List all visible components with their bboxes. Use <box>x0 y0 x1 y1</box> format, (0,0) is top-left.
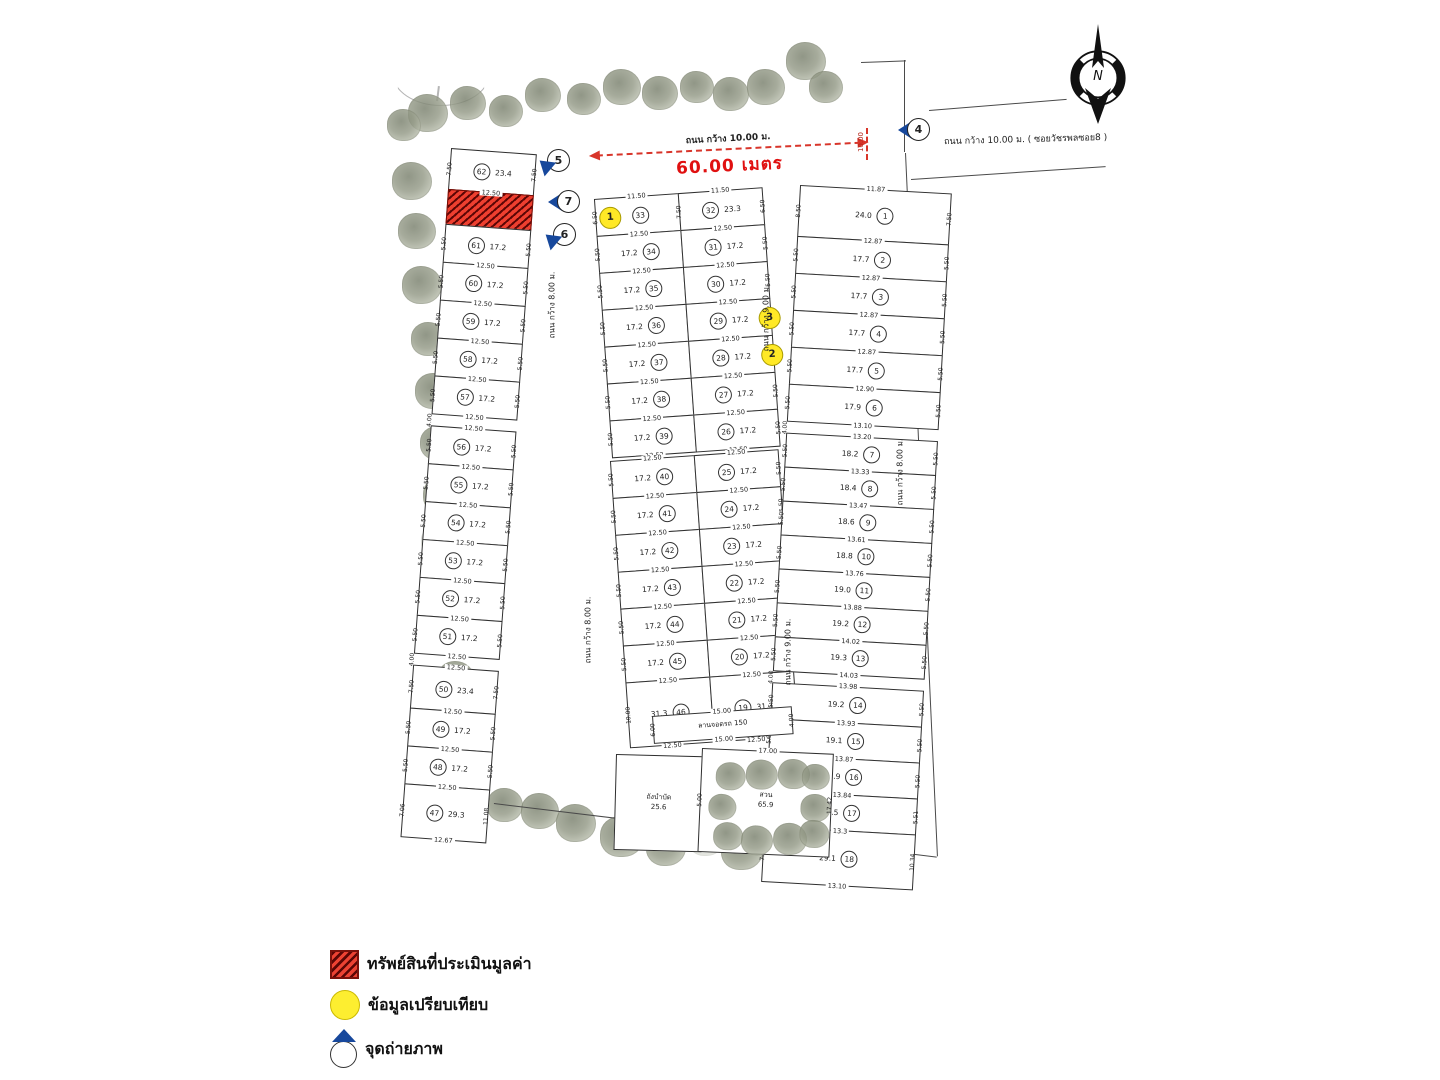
plot-right-dimension: 5.50 <box>938 367 945 381</box>
plot-bottom-width: 13.93 <box>835 719 858 727</box>
plot-number: 56 <box>452 438 470 456</box>
tree <box>402 266 442 304</box>
tree <box>747 69 785 105</box>
plot-left-dimension: 5.50 <box>785 396 792 410</box>
land-plot: 4729.312.677.0611.08 <box>400 783 490 843</box>
plot-left-dimension: 5.50 <box>421 514 428 528</box>
plot-area: 17.2 <box>748 576 765 586</box>
plot-number: 51 <box>438 627 456 645</box>
plot-number: 36 <box>647 316 665 334</box>
plot-right-dimension: 5.50 <box>936 404 943 418</box>
plot-left-dimension: 5.50 <box>783 443 790 457</box>
road-9m-label: ถนน กว้าง 9.00 ม. <box>782 619 795 686</box>
plot-number: 33 <box>631 206 649 224</box>
plot-left-dimension: 5.50 <box>787 359 794 373</box>
plot-top-width: 13.20 <box>851 433 874 441</box>
plot-bottom-width: 12.50 <box>441 707 464 715</box>
plot-number: 59 <box>461 312 479 330</box>
arrow-left-icon <box>589 150 600 161</box>
plot-right-dimension: 5.50 <box>773 384 780 398</box>
plot-number: 4 <box>870 325 888 343</box>
plot-number: 53 <box>444 552 462 570</box>
parking-left-dim: 6.00 <box>650 723 657 737</box>
plot-left-dimension: 7.50 <box>409 680 416 694</box>
plot-content: 24.01 <box>798 186 951 244</box>
tree <box>398 213 436 249</box>
plot-right-dimension: 5.50 <box>762 236 769 250</box>
plot-left-dimension: 5.50 <box>418 552 425 566</box>
plot-area: 17.2 <box>644 620 661 630</box>
tree <box>603 69 641 105</box>
plot-right-dimension: 5.51 <box>913 810 920 824</box>
comparable-marker-icon <box>330 990 360 1020</box>
plot-right-dimension: 11.08 <box>483 808 490 826</box>
plot-right-dimension: 5.50 <box>931 486 938 500</box>
plot-bottom-width: 12.50 <box>722 371 745 379</box>
plot-right-dimension: 5.50 <box>526 243 533 257</box>
plot-number: 22 <box>725 574 743 592</box>
garden-top-width: 17.00 <box>756 747 779 754</box>
plot-area: 17.2 <box>466 557 483 567</box>
plot-number: 13 <box>852 650 870 668</box>
tree <box>642 76 678 110</box>
garden-tree <box>713 822 744 851</box>
compass-rose: N <box>1062 22 1134 130</box>
plot-area: 17.2 <box>469 519 486 529</box>
plot-area: 17.2 <box>623 285 640 295</box>
plot-area: 17.7 <box>852 254 869 264</box>
plot-area: 17.2 <box>726 240 743 250</box>
plot-number: 10 <box>857 548 875 566</box>
plot-number: 16 <box>845 768 863 786</box>
plot-left-dimension: 5.50 <box>406 720 413 734</box>
parking-bottom-width: 15.00 <box>712 735 735 743</box>
plot-right-dimension: 5.50 <box>523 281 530 295</box>
plot-right-dimension: 5.50 <box>487 764 494 778</box>
plot-bottom-width: 12.50 <box>479 189 502 197</box>
plot-bottom-width: 12.50 <box>459 463 482 471</box>
plot-left-dimension: 5.50 <box>791 285 798 299</box>
plot-bottom-width: 12.50 <box>643 492 666 500</box>
plot-area: 17.2 <box>631 395 648 405</box>
plot-bottom-width: 12.50 <box>463 413 486 421</box>
plot-content: 4729.3 <box>402 784 490 842</box>
tree <box>556 804 596 842</box>
soi-road-label: ถนน กว้าง 10.00 ม. ( ซอยวัชรพลซอย8 ) <box>944 130 1108 148</box>
plot-right-dimension: 5.50 <box>927 554 934 568</box>
plot-number: 15 <box>847 733 865 751</box>
plot-number: 37 <box>650 353 668 371</box>
plot-bottom-width: 12.50 <box>630 267 653 275</box>
plot-bottom-width: 12.50 <box>474 262 497 270</box>
plot-number: 20 <box>730 647 748 665</box>
plot-left-dimension: 5.50 <box>769 694 776 708</box>
plot-right-dimension: 5.50 <box>490 726 497 740</box>
plot-left-dimension: 5.50 <box>605 396 612 410</box>
plot-number: 44 <box>666 615 684 633</box>
tree <box>567 83 601 115</box>
plot-right-dimension: 7.50 <box>493 686 500 700</box>
legend-item-subject: ทรัพย์สินที่ประเมินมูลค่า <box>330 950 532 979</box>
utility-plot: ถังบำบัด 25.6 <box>613 754 703 852</box>
plot-area: 17.2 <box>626 321 643 331</box>
plot-right-dimension: 5.50 <box>933 452 940 466</box>
plot-number: 2 <box>874 251 892 269</box>
camera-point-7: 7 <box>548 190 580 213</box>
plot-area: 18.4 <box>840 483 857 493</box>
plot-left-dimension: 5.50 <box>775 579 782 593</box>
plot-area: 19.2 <box>832 618 849 628</box>
road-8m-label: ถนน กว้าง 8.00 ม. <box>582 597 595 664</box>
plot-bottom-width: 14.03 <box>837 671 860 679</box>
plot-area: 17.2 <box>729 277 746 287</box>
garden-tree <box>745 759 778 790</box>
plot-number: 57 <box>456 388 474 406</box>
plot-left-dimension: 5.50 <box>413 627 420 641</box>
plot-top-width: 12.50 <box>462 425 485 433</box>
garden-plot: 17.00 5.00 17.42 สวน 65.9 <box>697 748 833 858</box>
legend: ทรัพย์สินที่ประเมินมูลค่า ข้อมูลเปรียบเท… <box>330 950 532 1079</box>
camera-point-number: 4 <box>907 118 930 141</box>
plot-number: 3 <box>872 288 890 306</box>
plot-number: 52 <box>441 590 459 608</box>
plot-right-dimension: 5.50 <box>922 655 929 669</box>
parking-label: ลานจอดรถ 150 <box>654 714 792 735</box>
plot-number: 40 <box>655 467 673 485</box>
plot-top-width: 12.50 <box>641 454 664 462</box>
plot-left-dimension: 5.50 <box>415 589 422 603</box>
road-edge-line <box>911 166 1106 180</box>
tree <box>809 71 843 103</box>
plot-bottom-width: 12.87 <box>860 274 883 282</box>
plot-area: 17.2 <box>742 502 759 512</box>
tree <box>489 95 523 127</box>
plot-bottom-width: 12.50 <box>451 577 474 585</box>
plot-area: 17.2 <box>740 465 757 475</box>
plot-number: 31 <box>704 238 722 256</box>
plot-right-dimension: 5.50 <box>940 330 947 344</box>
plot-bottom-width: 14.02 <box>839 637 862 645</box>
camera-point-6: 6 <box>544 220 576 248</box>
plot-number: 7 <box>863 446 881 464</box>
plot-bottom-width: 12.50 <box>439 745 462 753</box>
plot-bottom-width: 12.90 <box>853 385 876 393</box>
plot-left-dimension: 5.50 <box>608 432 615 446</box>
plot-number: 11 <box>855 582 873 600</box>
plot-area: 23.4 <box>457 685 474 695</box>
plot-bottom-width: 12.50 <box>436 783 459 791</box>
plot-number: 9 <box>859 514 877 532</box>
plot-bottom-width: 12.50 <box>654 639 677 647</box>
plot-left-dimension: 7.06 <box>400 803 407 817</box>
plot-area: 17.2 <box>634 432 651 442</box>
plot-bottom-width: 13.76 <box>843 570 866 578</box>
plot-area: 17.2 <box>634 473 651 483</box>
plot-area: 17.2 <box>732 314 749 324</box>
plot-area: 17.2 <box>472 481 489 491</box>
plot-area: 29.3 <box>448 809 465 819</box>
plot-number: 38 <box>652 390 670 408</box>
plot-bottom-width: 12.87 <box>862 237 885 245</box>
plot-bottom-width: 13.87 <box>833 755 856 763</box>
camera-point-5: 5 <box>538 146 570 174</box>
plot-right-dimension: 5.50 <box>511 444 518 458</box>
garden-tree <box>708 793 737 821</box>
plot-area: 17.2 <box>478 394 495 404</box>
plot-bottom-width: 12.50 <box>454 539 477 547</box>
plot-right-dimension: 5.50 <box>919 702 926 716</box>
plot-left-dimension: 5.50 <box>433 350 440 364</box>
garden-right-dim: 17.42 <box>827 797 834 814</box>
plot-number: 28 <box>712 348 730 366</box>
plot-left-dimension: 5.50 <box>598 285 605 299</box>
plot-top-width: 12.50 <box>444 664 467 672</box>
plot-area: 17.7 <box>850 291 867 301</box>
plot-number: 49 <box>432 720 450 738</box>
plot-area: 17.2 <box>745 539 762 549</box>
plot-area: 17.2 <box>639 547 656 557</box>
plot-area: 23.3 <box>724 203 741 213</box>
plot-right-dimension: 5.50 <box>497 634 504 648</box>
road-8m-label: ถนน กว้าง 8.00 ม. <box>894 439 907 506</box>
tree <box>525 78 561 112</box>
plot-number: 1 <box>876 207 894 225</box>
land-plot: 5023.412.5012.507.507.50 <box>410 665 499 715</box>
plot-number: 6 <box>866 399 884 417</box>
plot-bottom-width: 12.50 <box>719 335 742 343</box>
plot-right-dimension: 5.50 <box>925 587 932 601</box>
plot-bottom-width: 13.84 <box>831 791 854 799</box>
plot-right-dimension: 5.50 <box>942 293 949 307</box>
parking-right-dim: 4.00 <box>789 713 796 727</box>
plot-area: 19.3 <box>830 652 847 662</box>
plot-right-dimension: 5.50 <box>515 394 522 408</box>
plot-bottom-width: 12.50 <box>466 375 489 383</box>
plot-left-dimension: 5.50 <box>611 510 618 524</box>
plot-area: 17.2 <box>642 583 659 593</box>
plot-left-dimension: 5.50 <box>438 274 445 288</box>
plot-right-dimension: 5.50 <box>505 520 512 534</box>
plot-bottom-width: 12.50 <box>716 298 739 306</box>
plot-bottom-width: 12.50 <box>445 652 468 660</box>
plot-bottom-width: 12.50 <box>627 230 650 238</box>
legend-item-photo-point: จุดถ่ายภาพ <box>330 1031 532 1068</box>
plot-left-dimension: 5.50 <box>430 388 437 402</box>
plot-right-dimension: 5.50 <box>500 596 507 610</box>
plot-left-dimension: 5.50 <box>614 547 621 561</box>
plot-bottom-width: 13.33 <box>849 468 872 476</box>
legend-label: ข้อมูลเปรียบเทียบ <box>368 993 488 1018</box>
plot-number: 23 <box>723 537 741 555</box>
plot-bottom-width: 12.50 <box>727 486 750 494</box>
plot-bottom-width: 13.47 <box>847 502 870 510</box>
plot-area: 24.0 <box>855 210 872 220</box>
plot-left-dimension: 5.50 <box>436 312 443 326</box>
utility-plot-area: 25.6 <box>616 802 702 812</box>
plot-left-dimension: 5.50 <box>779 511 786 525</box>
plot-left-dimension: 5.50 <box>424 476 431 490</box>
legend-label: จุดถ่ายภาพ <box>365 1037 443 1062</box>
plot-top-width: 11.87 <box>864 186 887 194</box>
plot-bottom-width: 12.50 <box>456 501 479 509</box>
plot-number: 47 <box>425 803 443 821</box>
plot-bottom-width: 13.61 <box>845 536 868 544</box>
plot-area: 23.4 <box>495 168 512 178</box>
scanned-site-plan-page: 6223.412.507.507.506117.212.505.505.5060… <box>0 0 1440 1080</box>
garden-tree <box>801 763 830 791</box>
plot-number: 18 <box>840 850 858 868</box>
plot-bottom-width: 12.50 <box>635 340 658 348</box>
road-8m-label: ถนน กว้าง 8.00 ม. <box>546 272 559 339</box>
plot-number: 54 <box>447 514 465 532</box>
plot-bottom-width: 12.50 <box>740 670 763 678</box>
plot-right-dimension: 5.50 <box>917 738 924 752</box>
plot-bottom-width: 12.50 <box>640 414 663 422</box>
svg-text:N: N <box>1093 69 1103 84</box>
plot-right-dimension: 5.50 <box>503 558 510 572</box>
tree <box>392 162 432 200</box>
plot-area: 18.6 <box>838 517 855 527</box>
plot-left-dimension: 10.00 <box>626 706 633 724</box>
garden-area: 65.9 <box>758 800 774 809</box>
plot-number: 55 <box>449 476 467 494</box>
plot-number: 8 <box>861 480 879 498</box>
plot-left-dimension: 8.50 <box>796 204 803 218</box>
legend-item-comparable: ข้อมูลเปรียบเทียบ <box>330 990 532 1020</box>
photo-point-icon <box>330 1041 357 1068</box>
camera-point-number: 7 <box>557 190 580 213</box>
plot-area: 17.2 <box>737 388 754 398</box>
compass-icon: N <box>1062 22 1134 126</box>
plot-number: 39 <box>655 427 673 445</box>
plot-number: 17 <box>843 804 861 822</box>
plot-right-dimension: 5.50 <box>508 482 515 496</box>
plot-left-dimension: 5.50 <box>603 359 610 373</box>
plot-right-dimension: 5.50 <box>915 774 922 788</box>
tree <box>680 71 714 103</box>
plot-number: 26 <box>717 422 735 440</box>
plot-left-dimension: 5.50 <box>789 322 796 336</box>
plot-right-dimension: 6.50 <box>760 199 767 213</box>
plot-right-dimension: 5.50 <box>517 356 524 370</box>
plot-number: 50 <box>434 680 452 698</box>
road-dimension-annotation: ถนน กว้าง 10.00 ม. 60.00 เมตร <box>588 124 870 186</box>
plot-top-width: 13.98 <box>837 683 860 691</box>
plot-area: 17.2 <box>647 657 664 667</box>
plot-right-dimension: 5.50 <box>944 257 951 271</box>
plot-number: 24 <box>720 500 738 518</box>
plot-number: 29 <box>709 312 727 330</box>
plot-left-dimension: 5.50 <box>621 658 628 672</box>
plot-number: 14 <box>849 697 867 715</box>
plot-number: 62 <box>472 162 490 180</box>
tree <box>450 86 486 120</box>
plot-bottom-width: 12.50 <box>651 602 674 610</box>
plot-area: 17.2 <box>486 280 503 290</box>
plot-bottom-width: 12.50 <box>471 299 494 307</box>
plot-area: 17.2 <box>454 726 471 736</box>
plot-number: 12 <box>853 616 871 634</box>
garden-tree <box>799 819 830 848</box>
plot-left-dimension: 5.50 <box>793 248 800 262</box>
plot-right-dimension: 7.50 <box>946 213 953 227</box>
plot-bottom-width: 12.50 <box>448 615 471 623</box>
plot-left-dimension: 5.50 <box>616 584 623 598</box>
garden-label: สวน 65.9 <box>758 790 774 810</box>
plot-bottom-width: 12.50 <box>646 529 669 537</box>
plot-left-dimension: 7.50 <box>676 205 683 219</box>
plot-area: 19.1 <box>826 735 843 745</box>
plot-number: 27 <box>714 385 732 403</box>
plot-number: 58 <box>459 350 477 368</box>
plot-left-dimension: 5.50 <box>608 473 615 487</box>
garden-left-dim: 5.00 <box>697 793 704 807</box>
plot-left-dimension: 5.50 <box>777 545 784 559</box>
plot-left-dimension: 5.50 <box>771 647 778 661</box>
plot-number: 34 <box>642 242 660 260</box>
plot-area: 17.2 <box>461 633 478 643</box>
plot-left-dimension: 5.50 <box>619 621 626 635</box>
plot-number: 45 <box>668 652 686 670</box>
plot-number: 21 <box>728 610 746 628</box>
plot-right-dimension: 10.34 <box>910 854 917 871</box>
plot-area: 17.7 <box>848 327 865 337</box>
road-width-tick-line <box>866 128 868 160</box>
plot-number: 41 <box>658 504 676 522</box>
legend-label: ทรัพย์สินที่ประเมินมูลค่า <box>367 952 532 977</box>
plot-bottom-width: 12.50 <box>732 560 755 568</box>
plot-left-dimension: 5.50 <box>781 477 788 491</box>
garden-tree <box>740 825 773 856</box>
plot-right-dimension: 5.50 <box>929 520 936 534</box>
road-edge-line <box>929 99 1067 111</box>
plot-bottom-width: 12.87 <box>857 311 880 319</box>
plot-area: 17.2 <box>621 248 638 258</box>
plot-area: 17.2 <box>474 444 491 454</box>
plot-area: 17.2 <box>637 510 654 520</box>
plot-area: 17.2 <box>451 764 468 774</box>
garden-name: สวน <box>758 790 774 802</box>
plot-number: 61 <box>467 237 485 255</box>
plot-bottom-width: 13.3 <box>831 827 850 835</box>
plot-number: 42 <box>661 541 679 559</box>
plot-number: 43 <box>663 578 681 596</box>
plot-area: 18.2 <box>842 449 859 459</box>
plot-bottom-width: 12.50 <box>656 676 679 684</box>
plot-number: 35 <box>645 279 663 297</box>
plot-bottom-width: 12.87 <box>855 348 878 356</box>
boundary-line <box>861 60 906 63</box>
plot-area: 17.9 <box>844 401 861 411</box>
plot-left-dimension: 5.50 <box>600 322 607 336</box>
plot-area: 17.2 <box>484 318 501 328</box>
plot-bottom-width: 12.50 <box>730 523 753 531</box>
dimension-length-label: 60.00 เมตร <box>589 145 870 186</box>
plot-area: 17.7 <box>846 364 863 374</box>
plot-bottom-width: 12.50 <box>738 633 761 641</box>
plot-number: 30 <box>707 275 725 293</box>
plot-area: 17.2 <box>734 351 751 361</box>
plot-bottom-width: 12.50 <box>468 337 491 345</box>
plot-bottom-width: 12.50 <box>633 303 656 311</box>
plot-bottom-width: 12.50 <box>735 597 758 605</box>
road-9m-label: ถนน กว้าง 9.00 ม. <box>760 285 773 352</box>
plot-top-width: 11.50 <box>625 192 648 200</box>
plot-area: 17.2 <box>489 242 506 252</box>
plot-area: 17.2 <box>463 595 480 605</box>
plot-area: 17.2 <box>753 650 770 660</box>
plot-number: 25 <box>718 463 736 481</box>
